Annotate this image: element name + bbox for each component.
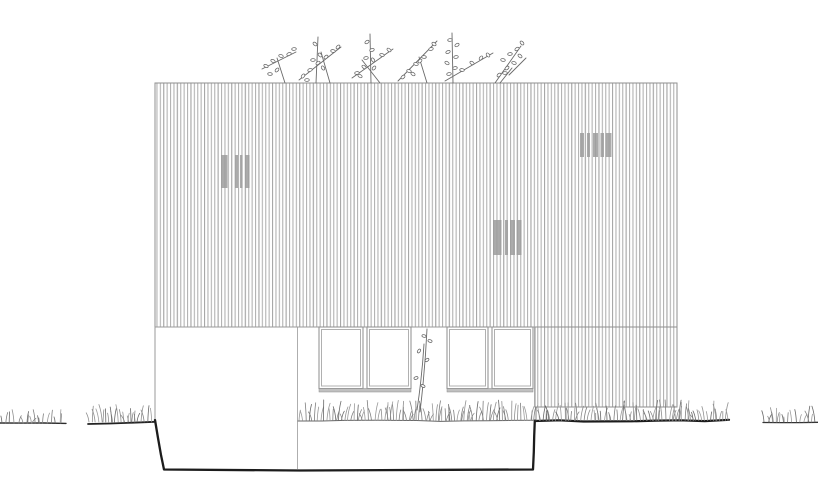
elevation-drawing <box>0 0 818 493</box>
ground-line-left <box>88 422 155 424</box>
ground-line-right <box>535 420 729 422</box>
louvre-vent-center <box>493 220 522 255</box>
louvre-vent-left <box>221 155 250 188</box>
foundation-outline <box>155 420 535 471</box>
sapling-plant <box>414 329 433 412</box>
roof-shrubs <box>262 33 526 83</box>
grass-left <box>86 405 152 423</box>
window-group-left <box>319 327 411 392</box>
window-group-right <box>447 327 533 392</box>
upper-cladding-panel <box>155 83 677 327</box>
grass-far-right <box>762 406 815 422</box>
elevation-canvas <box>0 0 818 493</box>
right-cladding-panel <box>535 327 677 407</box>
grass-far-left <box>1 410 62 423</box>
